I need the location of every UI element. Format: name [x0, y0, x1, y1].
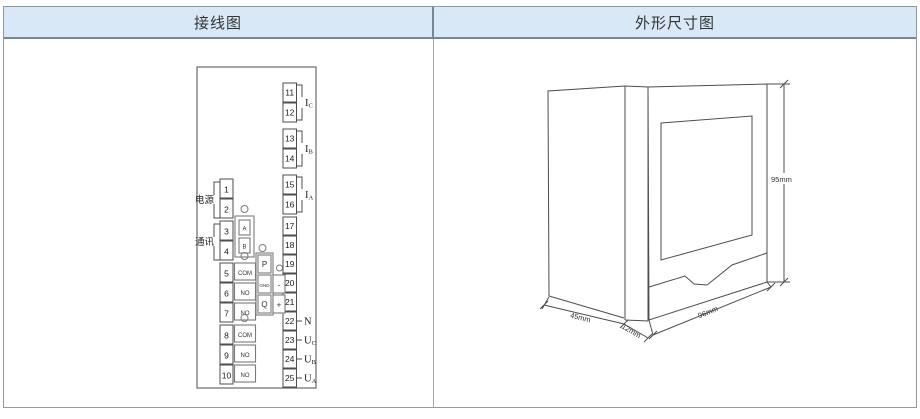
svg-text:14: 14 — [285, 154, 295, 164]
svg-text:5: 5 — [224, 269, 229, 279]
voltage-dashes — [297, 321, 302, 378]
header-cell-wiring: 接线图 — [4, 7, 434, 37]
current-label-A: IA — [305, 190, 314, 202]
meter-bezel — [625, 86, 648, 321]
svg-text:3: 3 — [224, 227, 229, 237]
svg-text:A: A — [242, 227, 246, 233]
voltage-label-UA: UA — [304, 374, 317, 386]
terminal-3: 3 — [220, 221, 233, 240]
svg-text:8: 8 — [224, 331, 229, 341]
svg-text:4: 4 — [224, 247, 229, 257]
terminal-10: 10 — [220, 365, 233, 384]
table-content: 电源 通讯 12345678910 1112131415161718192021… — [4, 39, 916, 407]
svg-text:B: B — [242, 245, 246, 251]
svg-text:21: 21 — [285, 297, 295, 307]
svg-text:COM: COM — [238, 271, 252, 277]
terminal-13: 13 — [283, 129, 297, 148]
svg-text:10: 10 — [222, 371, 232, 381]
terminal-22: 22 — [283, 312, 297, 330]
svg-text:NO: NO — [241, 291, 250, 297]
svg-text:6: 6 — [224, 289, 229, 299]
height-dim-label: 95mm — [771, 175, 792, 184]
meter-rear-body — [548, 86, 625, 318]
left-terminal-column: 12345678910 — [220, 179, 233, 384]
svg-text:22: 22 — [285, 316, 295, 326]
svg-text:+: + — [277, 301, 282, 310]
svg-text:20: 20 — [285, 278, 295, 288]
svg-text:GND: GND — [259, 283, 270, 288]
header-cell-dimensions: 外形尺寸图 — [434, 7, 916, 37]
terminal-25: 25 — [283, 369, 297, 387]
terminal-1: 1 — [220, 179, 233, 198]
terminal-15: 15 — [283, 175, 297, 194]
svg-text:11: 11 — [285, 88, 294, 98]
terminal-18: 18 — [283, 236, 297, 254]
terminal-9: 9 — [220, 345, 233, 364]
svg-text:13: 13 — [285, 134, 295, 144]
current-label-B: IB — [305, 144, 314, 156]
terminal-24: 24 — [283, 350, 297, 368]
terminal-5: 5 — [220, 263, 233, 282]
diagram-table: 接线图 外形尺寸图 电源 通讯 — [3, 6, 917, 408]
terminal-4: 4 — [220, 241, 233, 260]
svg-text:9: 9 — [224, 351, 229, 361]
display-window — [661, 116, 752, 260]
power-label: 电源 — [195, 194, 215, 206]
voltage-label-N: N — [304, 317, 312, 328]
terminal-17: 17 — [283, 217, 297, 235]
svg-text:24: 24 — [285, 354, 295, 364]
ia-bracket — [297, 177, 302, 212]
terminal-14: 14 — [283, 149, 297, 168]
terminal-16: 16 — [283, 195, 297, 214]
comm-bracket — [214, 224, 220, 260]
svg-text:15: 15 — [285, 180, 295, 190]
svg-text:16: 16 — [285, 200, 295, 210]
depth-dim-lines — [540, 297, 628, 328]
ic-bracket — [297, 85, 302, 120]
svg-text:18: 18 — [285, 240, 295, 250]
terminal-8: 8 — [220, 325, 233, 344]
terminal-2: 2 — [220, 199, 233, 218]
wiring-diagram-svg: 电源 通讯 12345678910 1112131415161718192021… — [4, 39, 433, 407]
svg-text:7: 7 — [224, 309, 229, 319]
svg-text:17: 17 — [285, 221, 295, 231]
terminal-7: 7 — [220, 303, 233, 322]
relay-block-2: COMNONO — [235, 315, 256, 383]
energy-pulse-block: PGNDQ — [256, 245, 273, 316]
aux-blocks: ABCOMNONOCOMNONOPGNDQ-+ — [235, 206, 286, 383]
comm-label: 通讯 — [195, 237, 215, 248]
voltage-label-UB: UB — [304, 355, 317, 367]
depth-dim-label: 45mm — [569, 311, 591, 325]
wiring-panel: 电源 通讯 12345678910 1112131415161718192021… — [4, 39, 434, 407]
phase-labels: ICIBIANUCUBUA — [304, 98, 317, 385]
current-label-C: IC — [305, 98, 313, 110]
svg-text:23: 23 — [285, 335, 295, 345]
svg-text:NO: NO — [241, 373, 250, 379]
svg-text:Q: Q — [261, 300, 267, 309]
thickness-dim-label: 12mm — [620, 322, 643, 340]
svg-text:P: P — [262, 260, 267, 269]
terminal-6: 6 — [220, 283, 233, 302]
svg-text:25: 25 — [285, 373, 295, 383]
svg-text:19: 19 — [285, 259, 295, 269]
terminal-23: 23 — [283, 331, 297, 349]
svg-text:COM: COM — [238, 333, 252, 339]
terminal-12: 12 — [283, 103, 297, 122]
page: 接线图 外形尺寸图 电源 通讯 — [0, 0, 920, 419]
table-header: 接线图 外形尺寸图 — [4, 7, 916, 39]
svg-text:-: - — [278, 281, 281, 290]
svg-text:1: 1 — [224, 185, 229, 195]
comm-ab-block: AB — [235, 206, 254, 258]
dimension-drawing-svg: 95mm 96mm 45mm 12mm — [434, 39, 917, 407]
right-terminal-column: 111213141516171819202122232425 — [283, 83, 297, 387]
terminal-19: 19 — [283, 255, 297, 273]
relay-block-1: COMNONO — [235, 253, 256, 321]
voltage-label-UC: UC — [304, 336, 316, 348]
terminal-11: 11 — [283, 83, 297, 102]
power-bracket — [214, 182, 220, 218]
svg-text:12: 12 — [285, 108, 295, 118]
ib-bracket — [297, 131, 302, 166]
svg-text:NO: NO — [241, 353, 250, 359]
width-dim-label: 96mm — [697, 304, 720, 320]
dimensions-panel: 95mm 96mm 45mm 12mm — [434, 39, 917, 407]
svg-text:2: 2 — [224, 205, 229, 215]
